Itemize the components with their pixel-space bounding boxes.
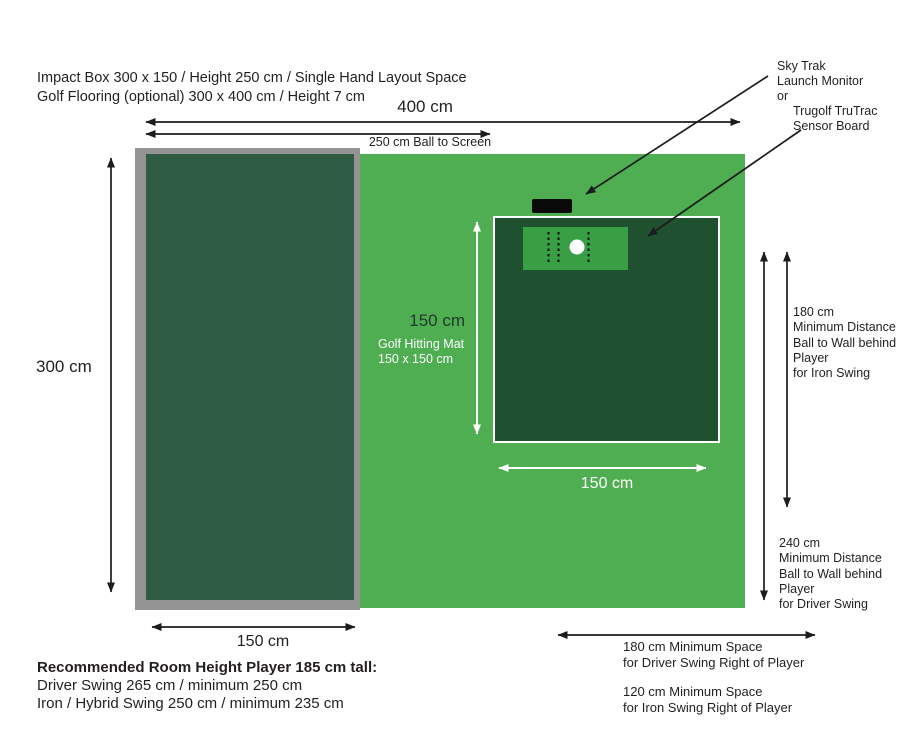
mat-size-label: 150 x 150 cm <box>378 352 453 366</box>
iron-space-line-2: for Iron Swing Right of Player <box>623 700 792 716</box>
sensor-board-shape <box>523 227 628 270</box>
driver-clearance-note: 240 cm Minimum Distance Ball to Wall beh… <box>779 536 882 612</box>
driver-space-note: 180 cm Minimum Space for Driver Swing Ri… <box>623 639 804 670</box>
room-depth-label: 300 cm <box>36 357 92 377</box>
callout-line-2: Launch Monitor <box>777 74 878 89</box>
ball-to-screen-label: 250 cm Ball to Screen <box>330 135 530 149</box>
iron-space-line-1: 120 cm Minimum Space <box>623 684 792 700</box>
impact-box-width-label: 150 cm <box>208 633 318 651</box>
driver-clearance-line-1: Minimum Distance <box>779 551 882 566</box>
footer-line-2: Iron / Hybrid Swing 250 cm / minimum 235… <box>37 695 377 713</box>
launch-monitor-shape <box>532 199 572 213</box>
mat-width-label: 150 cm <box>552 475 662 493</box>
impact-box-frame <box>135 148 360 610</box>
footer-title: Recommended Room Height Player 185 cm ta… <box>37 659 377 677</box>
sensor-callout: Sky Trak Launch Monitor or Trugolf TruTr… <box>777 59 878 134</box>
golf-simulator-room-diagram: Impact Box 300 x 150 / Height 250 cm / S… <box>0 0 900 750</box>
iron-clearance-value: 180 cm <box>793 305 896 320</box>
callout-line-4: Trugolf TruTrac <box>777 104 878 119</box>
impact-box-screen-area <box>146 154 354 600</box>
iron-clearance-line-4: for Iron Swing <box>793 366 896 381</box>
callout-line-5: Sensor Board <box>777 119 878 134</box>
iron-space-note: 120 cm Minimum Space for Iron Swing Righ… <box>623 684 792 715</box>
mat-height-label: 150 cm <box>380 311 465 331</box>
iron-clearance-line-2: Ball to Wall behind <box>793 336 896 351</box>
iron-clearance-line-3: Player <box>793 351 896 366</box>
header-line-1: Impact Box 300 x 150 / Height 250 cm / S… <box>37 69 467 88</box>
room-height-recommendations: Recommended Room Height Player 185 cm ta… <box>37 659 377 713</box>
driver-clearance-line-4: for Driver Swing <box>779 597 882 612</box>
iron-clearance-line-1: Minimum Distance <box>793 320 896 335</box>
iron-clearance-note: 180 cm Minimum Distance Ball to Wall beh… <box>793 305 896 381</box>
callout-line-1: Sky Trak <box>777 59 878 74</box>
total-width-label: 400 cm <box>330 97 520 117</box>
driver-space-line-1: 180 cm Minimum Space <box>623 639 804 655</box>
driver-clearance-line-2: Ball to Wall behind <box>779 567 882 582</box>
footer-line-1: Driver Swing 265 cm / minimum 250 cm <box>37 677 377 695</box>
driver-clearance-line-3: Player <box>779 582 882 597</box>
callout-line-3: or <box>777 89 878 104</box>
driver-clearance-value: 240 cm <box>779 536 882 551</box>
driver-space-line-2: for Driver Swing Right of Player <box>623 655 804 671</box>
mat-name-label: Golf Hitting Mat <box>378 337 464 351</box>
